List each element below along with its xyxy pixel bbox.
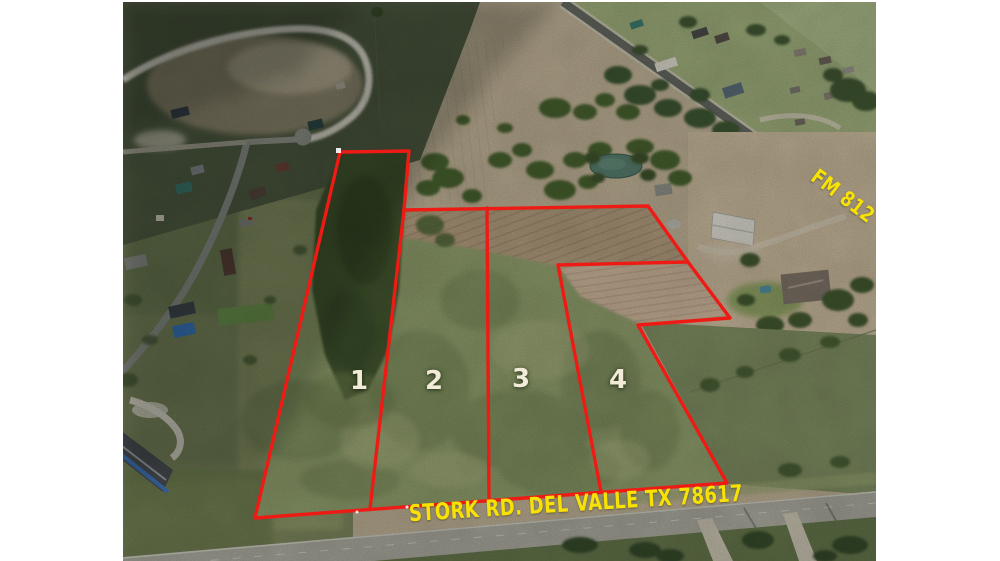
survey-marker (336, 148, 341, 153)
aerial-photo: 1 2 3 4 STORK RD. DEL VALLE TX 78617 FM … (123, 2, 876, 561)
photo-grain (123, 2, 876, 561)
divider-parcel-2-3 (487, 208, 489, 501)
aerial-scene (123, 2, 876, 561)
screenshot-canvas: 1 2 3 4 STORK RD. DEL VALLE TX 78617 FM … (0, 0, 1000, 561)
